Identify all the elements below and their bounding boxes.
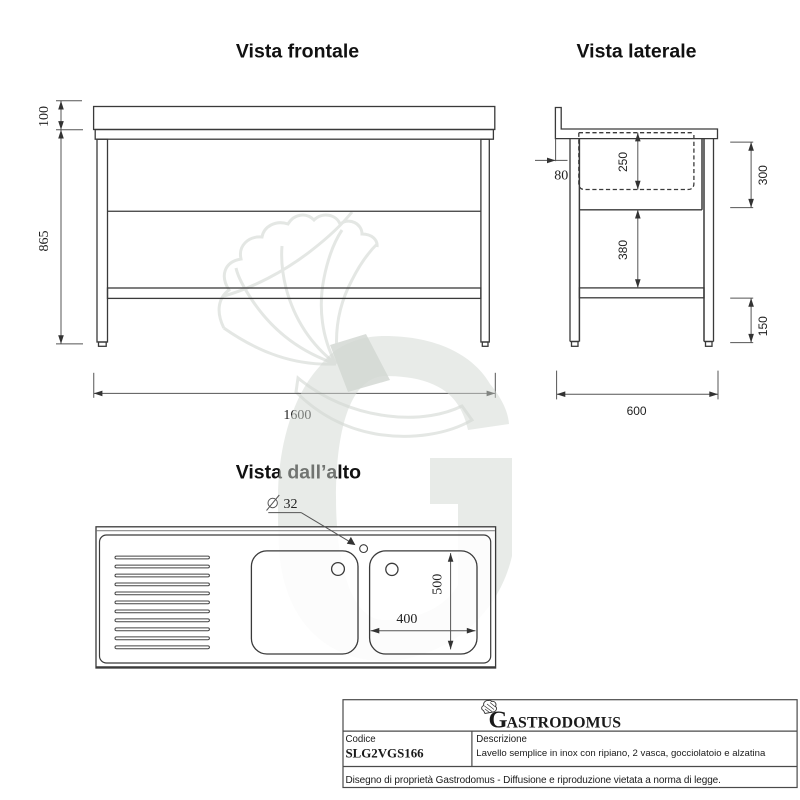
svg-text:100: 100 <box>37 106 52 127</box>
svg-text:Codice: Codice <box>346 734 376 745</box>
svg-text:150: 150 <box>756 316 770 336</box>
svg-text:Vista frontale: Vista frontale <box>236 41 359 63</box>
svg-text:300: 300 <box>756 165 770 185</box>
svg-text:80: 80 <box>554 169 568 184</box>
svg-text:250: 250 <box>616 152 630 172</box>
svg-text:Disegno di proprietà Gastrodom: Disegno di proprietà Gastrodomus - Diffu… <box>346 775 721 786</box>
svg-text:600: 600 <box>627 404 647 418</box>
svg-text:32: 32 <box>284 497 298 512</box>
svg-text:Descrizione: Descrizione <box>476 734 527 745</box>
svg-text:Lavello semplice in inox con r: Lavello semplice in inox con ripiano, 2 … <box>476 748 766 759</box>
svg-text:500: 500 <box>431 574 446 595</box>
svg-text:400: 400 <box>396 612 417 627</box>
svg-text:380: 380 <box>616 240 630 260</box>
svg-text:ASTRODOMUS: ASTRODOMUS <box>507 714 622 731</box>
svg-text:865: 865 <box>37 231 52 252</box>
svg-text:Vista laterale: Vista laterale <box>577 41 697 63</box>
svg-text:SLG2VGS166: SLG2VGS166 <box>346 746 425 760</box>
